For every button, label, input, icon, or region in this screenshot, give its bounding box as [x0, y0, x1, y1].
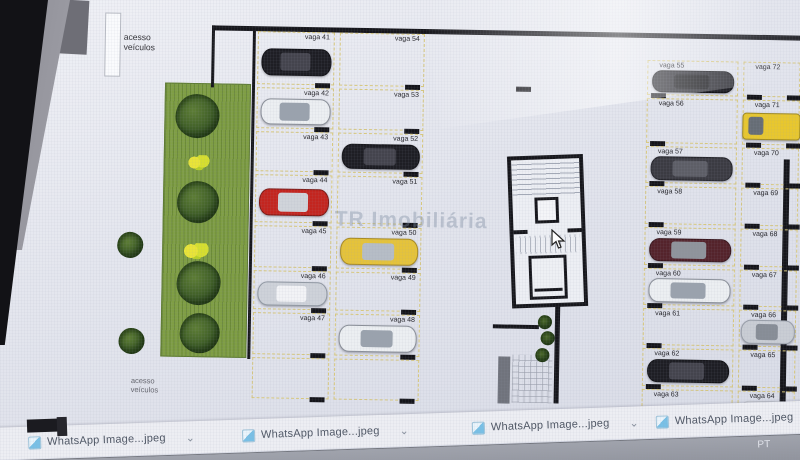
parking-space-label: vaga 46 [270, 272, 326, 281]
image-file-icon [472, 421, 485, 434]
car-cabin [748, 116, 763, 135]
car-cabin [674, 74, 709, 89]
car-top-view [261, 48, 332, 76]
car-top-view [742, 112, 800, 140]
parking-space-label: vaga 67 [752, 272, 800, 281]
car-cabin [363, 148, 396, 166]
car-top-view [647, 359, 730, 384]
car-cabin [669, 363, 704, 380]
parking-space-label: vaga 54 [364, 35, 420, 44]
parking-space-label: vaga 68 [752, 231, 800, 240]
parking-space-label: vaga 49 [360, 274, 416, 283]
parking-space-label: vaga 41 [274, 33, 330, 42]
car-top-view [342, 144, 420, 170]
car-cabin [278, 193, 308, 212]
parking-space-label: vaga 61 [655, 310, 715, 319]
parking-space-label: vaga 58 [657, 188, 717, 197]
car-cabin [362, 243, 395, 261]
download-item[interactable]: WhatsApp Image...jpeg ⌄ [28, 429, 195, 451]
parking-space-label: vaga 44 [271, 176, 327, 185]
car-top-view [340, 238, 418, 265]
download-filename: WhatsApp Image...jpeg [491, 417, 610, 433]
parking-space-label: vaga 52 [362, 135, 418, 144]
download-filename: WhatsApp Image...jpeg [261, 425, 380, 441]
car-cabin [756, 324, 778, 340]
wheel-stop [400, 399, 415, 404]
parking-space [252, 357, 330, 399]
car-top-view [257, 281, 328, 307]
parking-space-label: vaga 47 [269, 314, 325, 323]
parking-space-label: vaga 63 [654, 391, 714, 400]
car-cabin [281, 52, 311, 71]
download-item[interactable]: WhatsApp Image...jpeg ⌄ [472, 414, 639, 436]
image-file-icon [656, 415, 669, 428]
parking-space-label: vaga 71 [755, 102, 800, 111]
parking-space-label: vaga 69 [753, 190, 800, 199]
watermark: TR Imobiliária [334, 208, 554, 236]
parking-space-label: vaga 42 [273, 89, 329, 98]
parking-floor-plan: acesso veículos acesso veículos vaga 41v… [0, 0, 800, 460]
stair-box [528, 255, 568, 300]
image-file-icon [28, 436, 41, 449]
car-top-view [648, 278, 731, 303]
parking-space-label: vaga 72 [755, 64, 800, 73]
car-cabin [276, 285, 306, 302]
language-indicator[interactable]: PT [757, 439, 770, 450]
parking-space-label: vaga 59 [656, 229, 716, 238]
car-top-view [741, 320, 795, 344]
car-top-view [259, 188, 330, 216]
wheel-stop [310, 397, 325, 402]
chevron-down-icon[interactable]: ⌄ [629, 416, 639, 429]
paving-hatch [512, 355, 553, 404]
car-top-view [650, 156, 733, 181]
car-top-view [652, 70, 735, 93]
download-item[interactable]: WhatsApp Image...jpeg ⌄ [242, 422, 409, 444]
parking-space-label: vaga 65 [750, 352, 800, 361]
stairs-hatch [511, 158, 580, 196]
car-cabin [280, 103, 310, 121]
car-cabin [672, 242, 707, 259]
car-top-view [339, 325, 417, 352]
parking-space-label: vaga 51 [361, 178, 417, 187]
download-item[interactable]: WhatsApp Image...jpeg ⌃ [656, 408, 800, 430]
parking-space-label: vaga 56 [659, 100, 719, 109]
chevron-down-icon[interactable]: ⌄ [399, 424, 409, 437]
parking-space-label: vaga 62 [654, 350, 714, 359]
wall-stub [567, 228, 581, 232]
car-cabin [673, 161, 708, 177]
wheel-stop [516, 87, 531, 92]
car-top-view [649, 238, 732, 263]
parking-space-label: vaga 70 [754, 150, 800, 159]
parking-space [334, 359, 420, 401]
parking-space-label: vaga 43 [272, 133, 328, 142]
wall-stub [493, 324, 539, 329]
stairs-hatch [516, 234, 581, 254]
parking-space-label: vaga 53 [363, 91, 419, 100]
photographed-monitor: acesso veículos acesso veículos vaga 41v… [0, 0, 800, 460]
image-file-icon [242, 429, 255, 442]
parking-space-label: vaga 45 [270, 227, 326, 236]
car-cabin [360, 330, 393, 348]
wall-segment [498, 356, 511, 403]
chevron-down-icon[interactable]: ⌄ [185, 431, 195, 444]
download-filename: WhatsApp Image...jpeg [675, 411, 794, 427]
car-top-view [260, 98, 331, 125]
parking-space-label: vaga 48 [359, 316, 415, 325]
car-cabin [671, 283, 706, 299]
photo-dark-edge [57, 417, 68, 436]
